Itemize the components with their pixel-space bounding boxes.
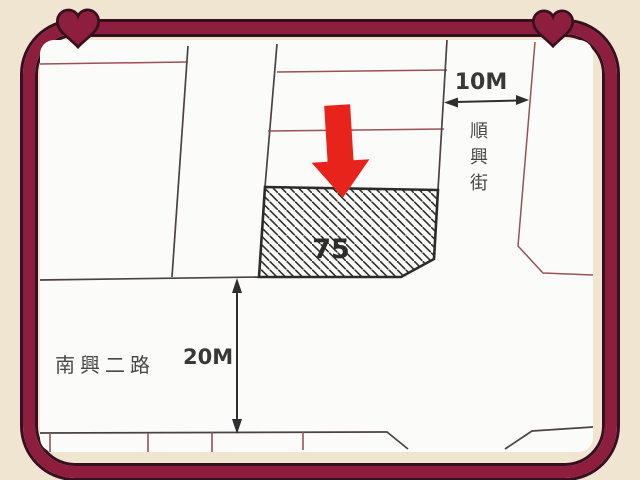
road-name: 南興二路: [55, 349, 155, 378]
map-paper: 75 10M 順興街 20M 南興二路: [40, 40, 593, 452]
road-south-edge-west: [40, 432, 408, 449]
road-width-dimension: [232, 278, 242, 434]
parcel-number: 75: [308, 234, 354, 265]
lot-line-upper: [277, 70, 447, 72]
street-edge-east-chamfer: [518, 42, 593, 275]
block-line-top-left: [40, 62, 187, 64]
heart-icon: [56, 8, 100, 49]
framed-map-card: 75 10M 順興街 20M 南興二路: [0, 0, 640, 480]
road-north-edge: [40, 277, 259, 280]
road-south-edge-east: [505, 427, 593, 449]
street-width-dimension: [444, 95, 529, 108]
heart-icon: [532, 9, 574, 48]
road-width-label: 20M: [183, 345, 233, 369]
street-name-vertical: 順興街: [464, 121, 490, 199]
block-boundary-west: [172, 46, 188, 277]
red-down-arrow-icon: [308, 103, 372, 199]
lot-line-lower: [268, 129, 444, 131]
block-boundary-mid: [265, 44, 277, 187]
street-edge-west: [438, 40, 447, 190]
street-width-label: 10M: [448, 70, 514, 95]
